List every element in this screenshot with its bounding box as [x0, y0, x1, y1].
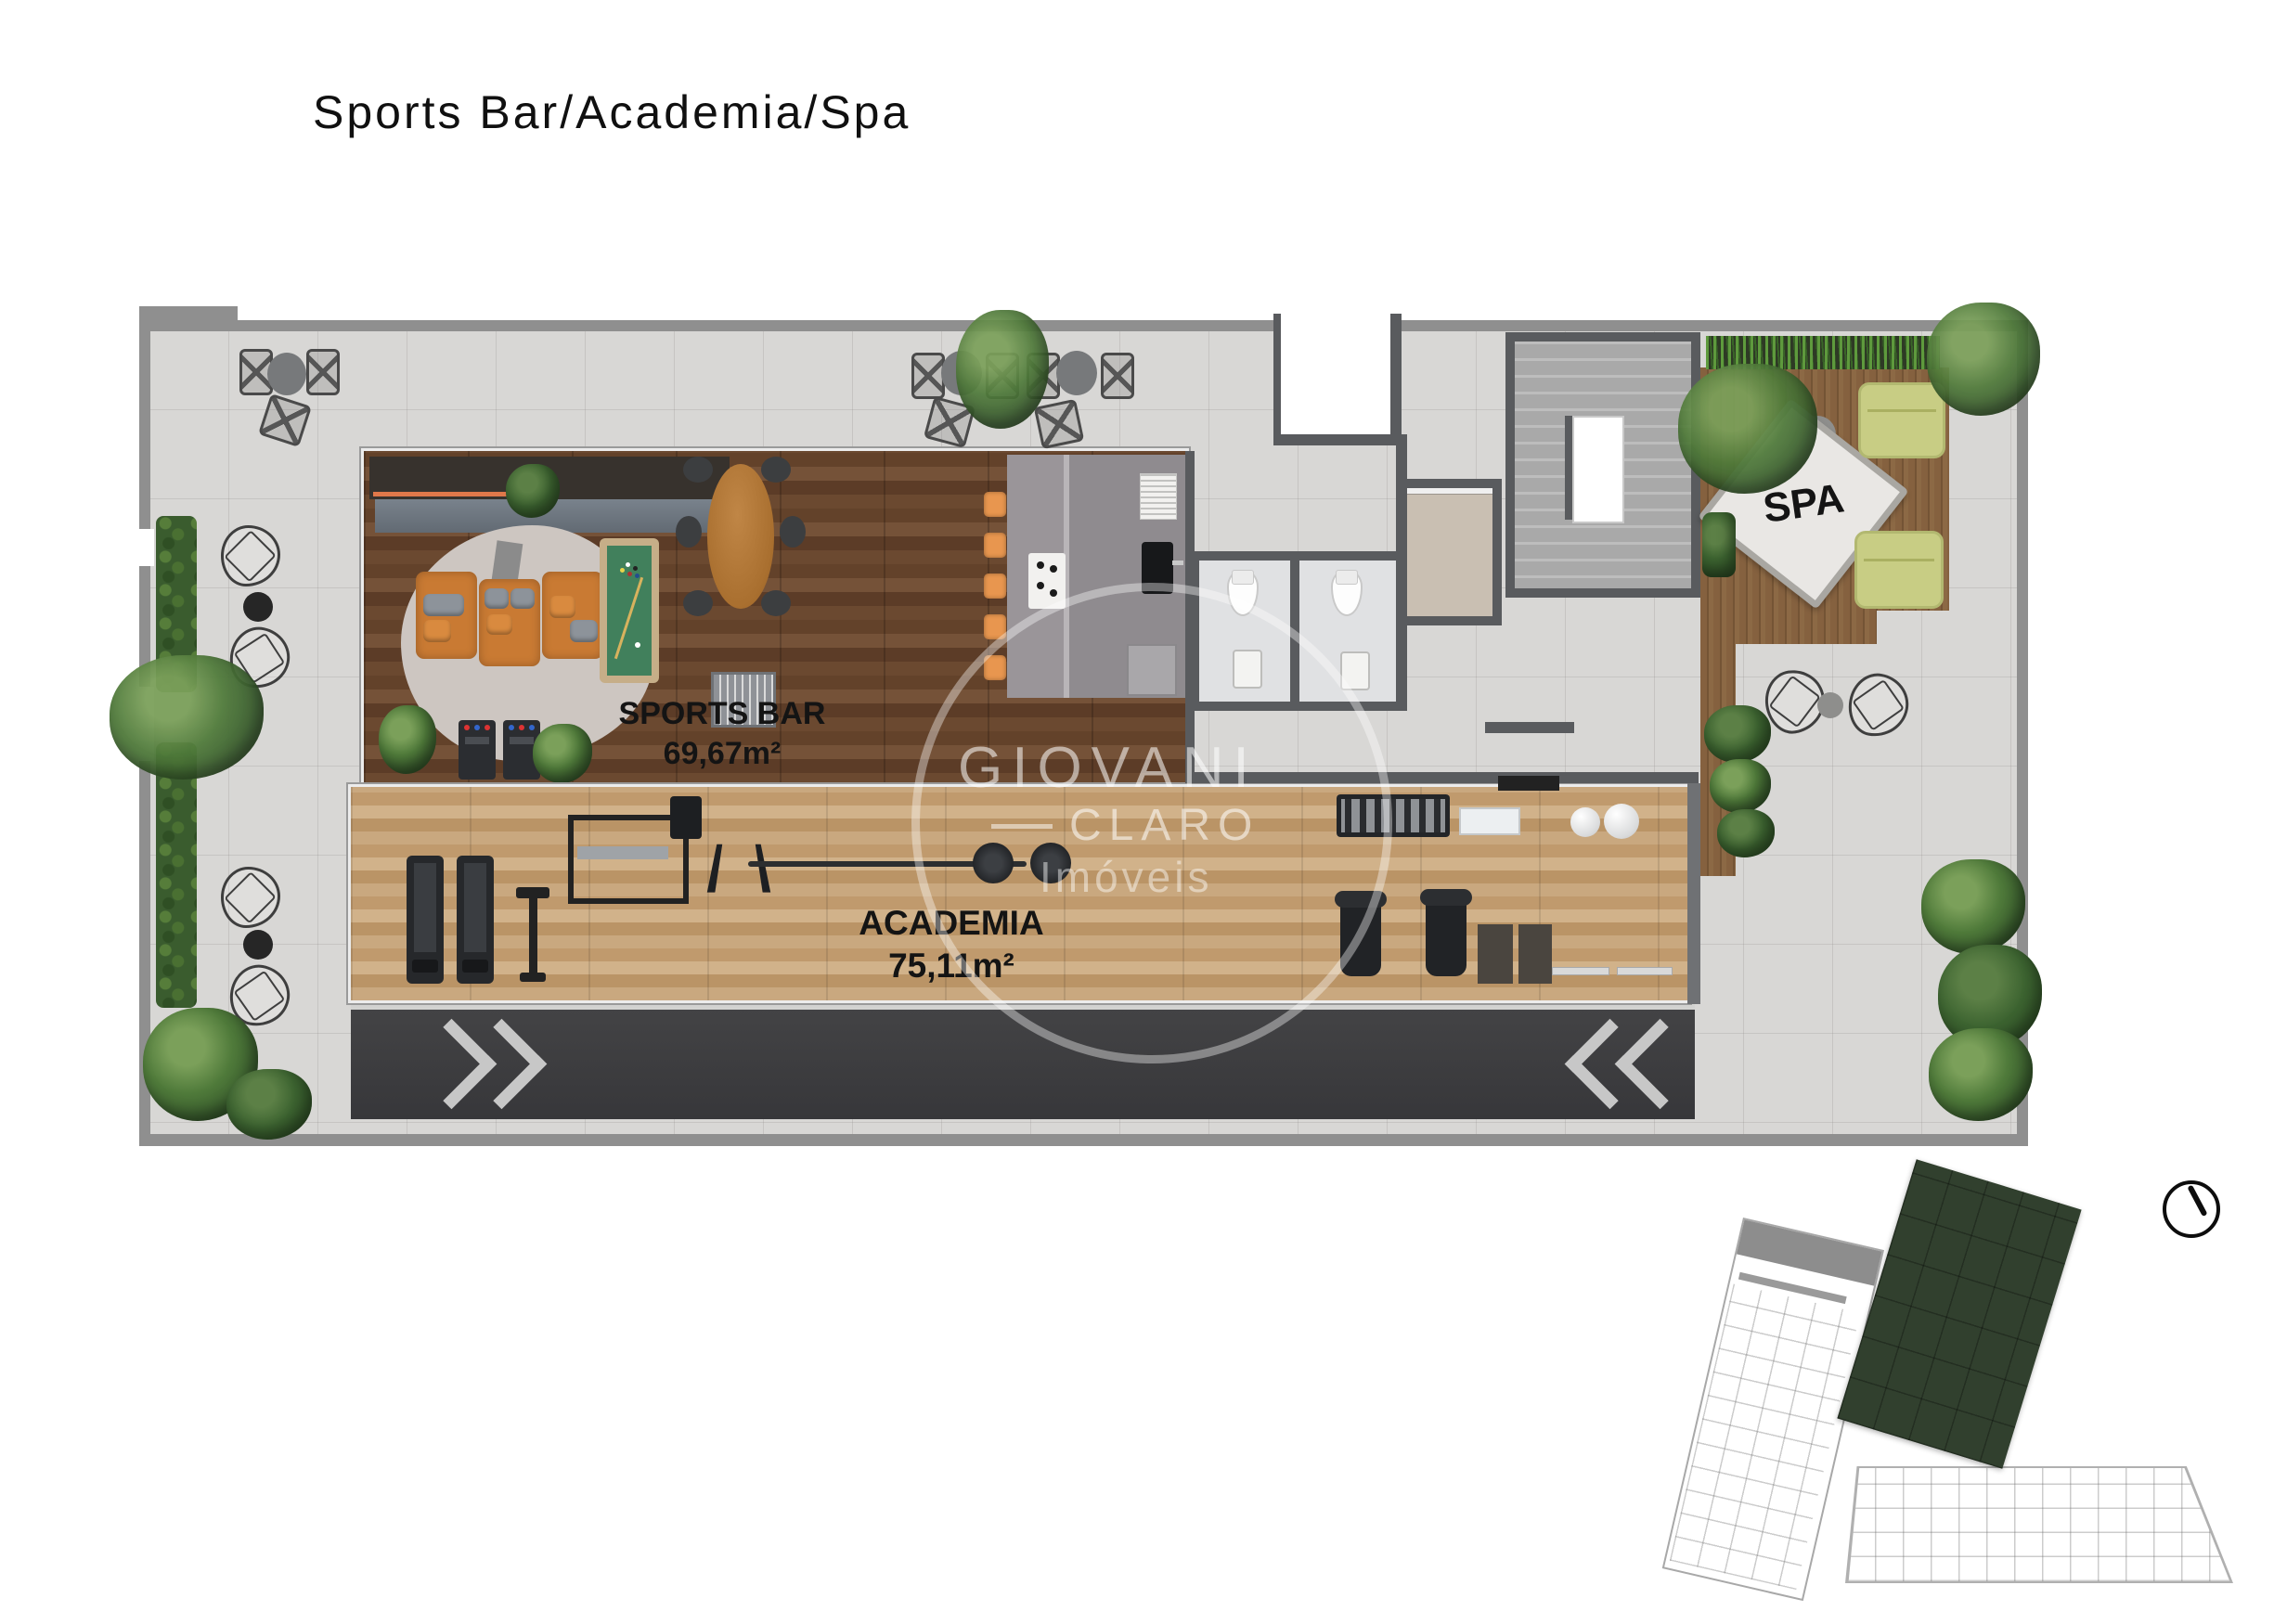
bench-bar: [1420, 889, 1472, 906]
stair-divider: [1565, 416, 1572, 520]
bar-stool: [984, 533, 1006, 558]
cue-ball: [635, 642, 640, 648]
sofa-cushion: [549, 596, 575, 618]
treadmill-console: [462, 960, 488, 973]
outer-wall-bottom: [139, 1134, 2028, 1146]
wall-opening: [136, 529, 154, 566]
sofa-cushion: [485, 588, 509, 609]
core-wall: [1390, 314, 1402, 445]
floor-plan-canvas: Sports Bar/Academia/Spa: [0, 0, 2274, 1624]
arcade-buttons: [464, 725, 470, 730]
dining-chair: [761, 590, 791, 616]
exercise-mat: [1478, 924, 1513, 984]
elevator-cab: [1407, 488, 1492, 616]
compass-needle: [2187, 1185, 2207, 1218]
dish-rack: [1140, 473, 1177, 520]
sofa-module: [416, 572, 477, 659]
dining-chair: [780, 516, 806, 548]
arcade-screen: [465, 737, 489, 744]
treadmill-belt: [414, 863, 436, 952]
weight-machine-base: [520, 973, 546, 982]
outer-wall-top: [139, 320, 2028, 331]
core-wall-stub: [1485, 722, 1574, 733]
bar-stool: [984, 574, 1006, 599]
compass-icon: [2163, 1180, 2220, 1238]
treadmill-console: [412, 960, 438, 973]
dining-chair: [676, 516, 702, 548]
shaft-void: [1279, 314, 1396, 434]
keyplan-wing-bottom: [1845, 1466, 2233, 1583]
rack-bench: [577, 846, 668, 859]
arcade-buttons: [509, 725, 514, 730]
watermark-rule: [991, 824, 1053, 829]
sofa-module: [479, 579, 540, 666]
keyplan-highlight: [1837, 1159, 2081, 1469]
treadmill-belt: [464, 863, 486, 952]
treadmill: [407, 856, 444, 984]
bistro-chair: [1101, 353, 1134, 399]
keyplan-rooms: [1847, 1468, 2231, 1581]
stair-void: [1572, 416, 1624, 523]
bistro-table: [267, 353, 306, 395]
elevator-door: [1407, 488, 1492, 495]
bistro-chair: [1034, 399, 1085, 450]
weight-machine-column: [529, 896, 537, 976]
sofa-cushion: [423, 594, 464, 616]
core-wall: [1273, 314, 1281, 440]
exercise-ball: [1570, 807, 1600, 837]
spa-deck-step: [1700, 611, 1877, 644]
sofa-cushion: [486, 614, 512, 635]
dumbbell-stand: [670, 796, 702, 839]
side-table-black: [243, 930, 273, 960]
entry-mat: [1498, 776, 1559, 791]
gym-bench-white: [1459, 807, 1520, 835]
side-table: [1817, 692, 1843, 718]
sofa-cushion: [423, 620, 451, 642]
pool-table: [600, 538, 659, 683]
treadmill: [457, 856, 494, 984]
arcade-screen: [510, 737, 534, 744]
watermark-brand-bottom: CLARO: [1069, 800, 1260, 851]
bistro-chair: [306, 349, 340, 395]
weight-bench: [1426, 895, 1466, 976]
pool-balls: [626, 562, 630, 567]
spa-lounger: [1854, 531, 1944, 609]
bar-stool: [984, 492, 1006, 517]
keyplan-rooms: [1670, 1284, 1860, 1591]
arcade-machine: [459, 720, 496, 780]
hedge: [156, 742, 197, 1008]
watermark-tagline: Imóveis: [1040, 852, 1212, 902]
sofa-cushion: [510, 588, 535, 609]
sports-bar-label: SPORTS BAR 69,67m²: [611, 694, 833, 773]
dining-table: [707, 464, 774, 609]
faucet: [1172, 561, 1183, 565]
core-wall: [1273, 434, 1402, 445]
exercise-ball: [1604, 804, 1639, 839]
watermark-brand-top: GIOVANI: [958, 735, 1259, 801]
exercise-mat: [1518, 924, 1552, 984]
dining-chair: [683, 590, 713, 616]
page-title: Sports Bar/Academia/Spa: [313, 85, 911, 139]
landmine-frame: [707, 844, 770, 893]
sofa-module: [542, 572, 603, 659]
railing-segment: [1552, 967, 1609, 975]
gym-east-wall: [1687, 783, 1700, 1004]
planter-box: [1702, 512, 1736, 577]
dining-chair: [761, 457, 791, 483]
railing-segment: [1617, 967, 1673, 975]
sports-bar-name: SPORTS BAR: [611, 694, 833, 734]
sports-bar-area: 69,67m²: [611, 734, 833, 774]
side-table-black: [243, 592, 273, 622]
bistro-chair: [911, 353, 945, 399]
bistro-table: [1056, 351, 1097, 395]
spa-lounger: [1858, 382, 1945, 458]
sofa-cushion: [570, 620, 598, 642]
dining-chair: [683, 457, 713, 483]
burners: [1037, 561, 1044, 569]
stairwell: [1505, 332, 1700, 598]
